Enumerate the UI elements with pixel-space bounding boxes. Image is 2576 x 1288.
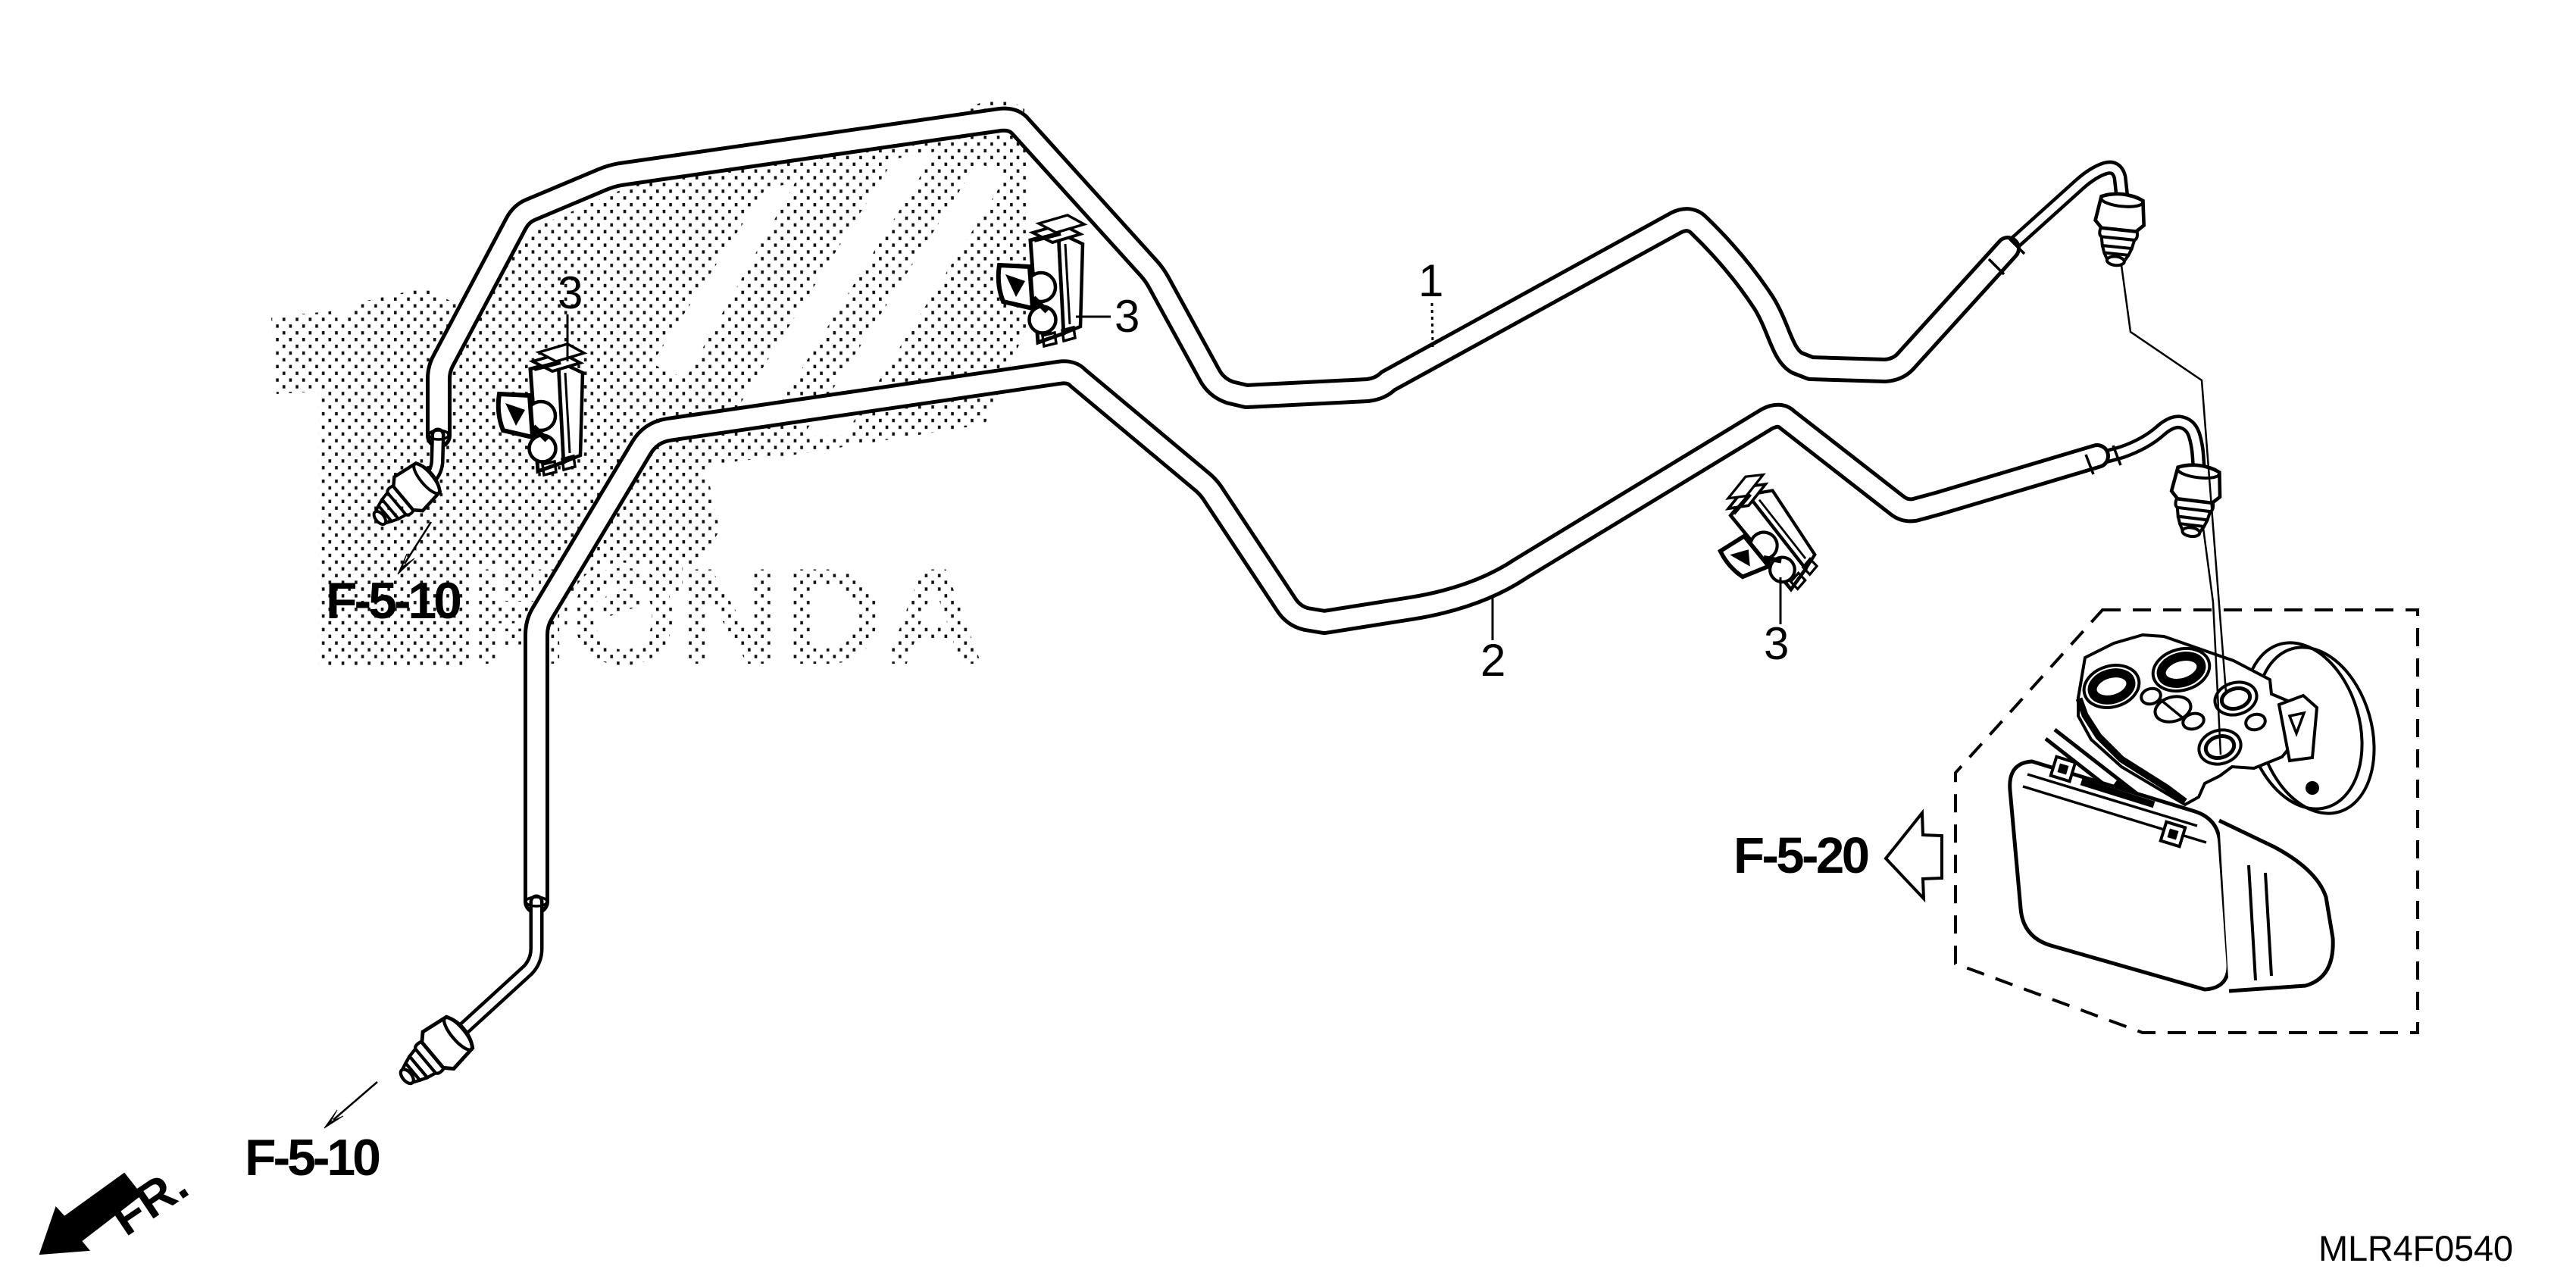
svg-text:F-5-20: F-5-20 xyxy=(1733,827,1870,884)
svg-text:1: 1 xyxy=(1418,255,1443,306)
svg-text:F-5-10: F-5-10 xyxy=(326,572,462,630)
svg-text:F-5-10: F-5-10 xyxy=(245,1129,381,1186)
svg-text:MLR4F0540: MLR4F0540 xyxy=(2318,1228,2513,1268)
svg-text:3: 3 xyxy=(1114,291,1140,342)
svg-text:3: 3 xyxy=(1764,618,1789,669)
svg-text:3: 3 xyxy=(558,267,583,318)
svg-text:2: 2 xyxy=(1480,635,1505,686)
